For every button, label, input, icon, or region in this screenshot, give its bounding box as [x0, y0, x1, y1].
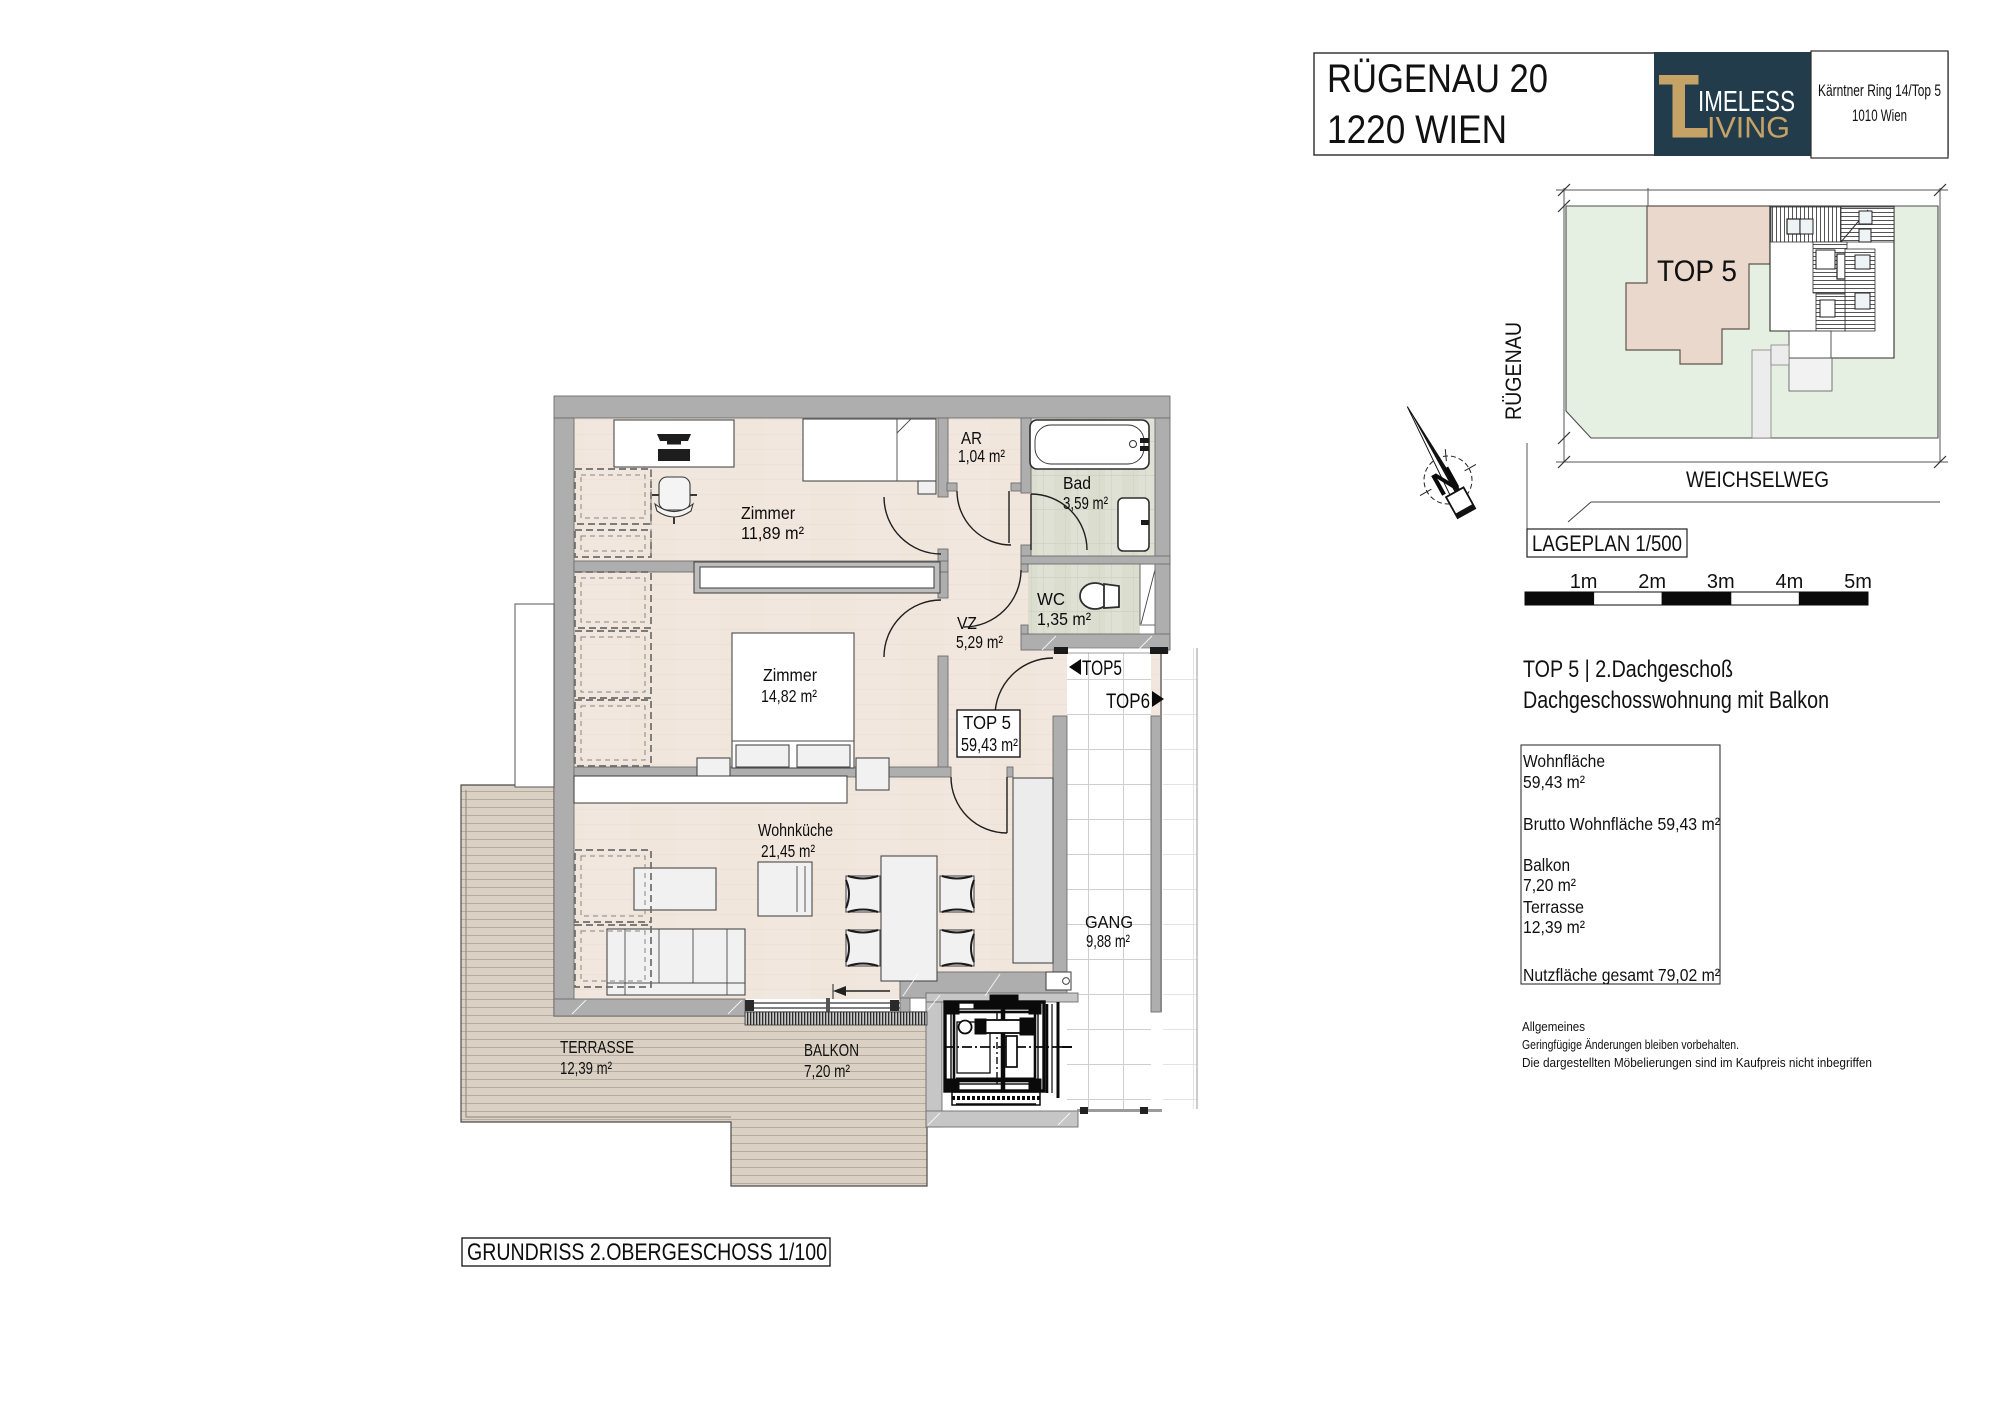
svg-text:59,43 m²: 59,43 m²: [961, 735, 1018, 755]
svg-text:Wohnfläche: Wohnfläche: [1523, 751, 1605, 771]
svg-text:5m: 5m: [1844, 571, 1872, 593]
svg-text:VZ: VZ: [957, 613, 977, 633]
svg-text:2m: 2m: [1638, 571, 1666, 593]
svg-text:59,43 m²: 59,43 m²: [1523, 772, 1585, 792]
svg-text:IVING: IVING: [1707, 112, 1790, 145]
svg-text:7,20 m²: 7,20 m²: [804, 1061, 850, 1081]
svg-text:Allgemeines: Allgemeines: [1522, 1020, 1585, 1034]
svg-text:12,39 m²: 12,39 m²: [1523, 917, 1585, 937]
svg-text:3m: 3m: [1707, 571, 1735, 593]
svg-text:TOP5: TOP5: [1082, 657, 1122, 680]
svg-text:Kärntner Ring 14/Top 5: Kärntner Ring 14/Top 5: [1818, 81, 1941, 100]
svg-text:Zimmer: Zimmer: [763, 665, 817, 685]
svg-text:12,39 m²: 12,39 m²: [560, 1058, 612, 1078]
svg-text:21,45 m²: 21,45 m²: [761, 841, 815, 861]
svg-text:14,82 m²: 14,82 m²: [761, 686, 817, 706]
svg-text:RÜGENAU 20: RÜGENAU 20: [1327, 57, 1548, 101]
svg-text:BALKON: BALKON: [804, 1040, 859, 1060]
svg-text:3,59 m²: 3,59 m²: [1063, 493, 1108, 513]
svg-text:Zimmer: Zimmer: [741, 503, 795, 523]
svg-text:1220 WIEN: 1220 WIEN: [1327, 108, 1507, 152]
svg-text:Nutzfläche gesamt 79,02 m²: Nutzfläche gesamt 79,02 m²: [1523, 965, 1720, 985]
svg-text:TOP 5 | 2.Dachgeschoß: TOP 5 | 2.Dachgeschoß: [1523, 656, 1733, 683]
svg-text:TOP6: TOP6: [1106, 690, 1150, 713]
svg-text:TOP 5: TOP 5: [963, 713, 1011, 733]
svg-text:GANG: GANG: [1085, 912, 1133, 932]
svg-text:Dachgeschosswohnung mit Balkon: Dachgeschosswohnung mit Balkon: [1523, 687, 1829, 714]
svg-text:1,04 m²: 1,04 m²: [958, 446, 1005, 466]
svg-text:TOP 5: TOP 5: [1657, 255, 1737, 288]
svg-text:AR: AR: [961, 428, 982, 448]
svg-text:LAGEPLAN 1/500: LAGEPLAN 1/500: [1532, 531, 1682, 556]
svg-text:Die dargestellten Möbelierunge: Die dargestellten Möbelierungen sind im …: [1522, 1056, 1872, 1070]
svg-text:Bad: Bad: [1063, 473, 1091, 493]
svg-text:Balkon: Balkon: [1523, 855, 1570, 875]
svg-text:RÜGENAU: RÜGENAU: [1501, 322, 1526, 420]
svg-text:WEICHSELWEG: WEICHSELWEG: [1686, 467, 1829, 492]
svg-text:7,20 m²: 7,20 m²: [1523, 875, 1576, 895]
svg-text:Terrasse: Terrasse: [1523, 897, 1584, 917]
svg-text:Geringfügige Änderungen bleibe: Geringfügige Änderungen bleiben vorbehal…: [1522, 1038, 1739, 1052]
svg-text:4m: 4m: [1776, 571, 1804, 593]
svg-text:GRUNDRISS 2.OBERGESCHOSS 1/100: GRUNDRISS 2.OBERGESCHOSS 1/100: [467, 1239, 827, 1266]
svg-text:WC: WC: [1037, 589, 1065, 609]
svg-text:1,35 m²: 1,35 m²: [1037, 609, 1091, 629]
svg-text:5,29 m²: 5,29 m²: [956, 632, 1003, 652]
svg-text:1010 Wien: 1010 Wien: [1852, 106, 1907, 125]
svg-text:9,88 m²: 9,88 m²: [1086, 931, 1130, 951]
svg-text:Brutto Wohnfläche 59,43 m²: Brutto Wohnfläche 59,43 m²: [1523, 814, 1720, 834]
svg-text:11,89 m²: 11,89 m²: [741, 523, 804, 543]
svg-text:Wohnküche: Wohnküche: [758, 820, 833, 840]
svg-text:TERRASSE: TERRASSE: [560, 1037, 634, 1057]
svg-text:1m: 1m: [1570, 571, 1598, 593]
